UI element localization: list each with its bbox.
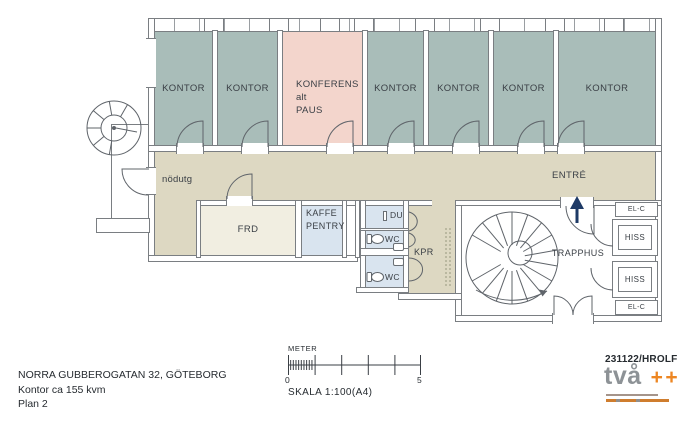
elc-top-label: EL-C <box>628 206 645 213</box>
label-kontor-2: KONTOR <box>218 83 277 94</box>
konferens-line2: alt <box>296 91 359 104</box>
wall-du-wc <box>360 228 409 231</box>
label-wc-upper: WC <box>385 234 400 244</box>
hiss-car: HISS <box>618 225 652 250</box>
logo-fineprint-line-2 <box>606 399 669 402</box>
entrance-door-opening <box>552 313 594 324</box>
pentry-line1: KAFFE <box>306 207 345 220</box>
door-arc <box>591 268 613 290</box>
company-logo: två ++ <box>604 362 680 391</box>
door-arc <box>591 224 613 246</box>
label-wc-lower: WC <box>385 272 400 282</box>
wall-trapphus-left <box>455 200 462 322</box>
hiss-upper-label: HISS <box>625 233 645 242</box>
scale-text: SKALA 1:100(A4) <box>288 387 372 398</box>
door-opening <box>326 143 354 154</box>
hiss-lower-label: HISS <box>625 275 645 284</box>
sink <box>393 243 404 251</box>
label-kontor-4: KONTOR <box>429 83 488 94</box>
scale-end-value: 5 <box>417 375 422 385</box>
scale-start-value: 0 <box>285 375 290 385</box>
door-opening <box>557 143 585 154</box>
escape-landing-step <box>96 218 150 233</box>
logo-fineprint-line-1 <box>606 394 658 396</box>
shower-icon <box>383 211 387 221</box>
door-opening <box>241 143 269 154</box>
trapphus-door-opening <box>560 197 594 208</box>
wall-kpr-bottom <box>398 293 462 300</box>
wall-frd-right <box>295 200 302 258</box>
elc-bottom-label: EL-C <box>628 304 645 311</box>
label-du: DU <box>390 210 403 220</box>
sink <box>393 258 404 266</box>
left-wall-window <box>146 38 156 88</box>
label-kaffe-pentry: KAFFE PENTRY <box>306 207 345 232</box>
pentry-line2: PENTRY <box>306 220 345 233</box>
konferens-line1: KONFERENS <box>296 78 359 91</box>
stair-direction-arrowhead <box>539 290 547 297</box>
logo-text: två <box>604 362 642 391</box>
emergency-exit-opening <box>146 167 156 195</box>
label-nodutg: nödutg <box>162 174 192 185</box>
corridor-left-strip <box>155 200 196 255</box>
logo-plus-icon: ++ <box>651 366 681 390</box>
door-opening <box>517 143 545 154</box>
window-pier <box>604 19 624 31</box>
elc-bottom-box: EL-C <box>615 300 658 315</box>
floor-plan-sheet: EL-C HISS HISS EL-C <box>0 0 700 440</box>
label-kpr: KPR <box>414 247 434 258</box>
door-opening <box>452 143 480 154</box>
title-block: NORRA GUBBEROGATAN 32, GÖTEBORG Kontor c… <box>18 368 226 412</box>
frd-door-opening <box>226 196 253 206</box>
exterior-window-wall <box>148 18 662 32</box>
area-line: Kontor ca 155 kvm <box>18 383 226 398</box>
floor-line: Plan 2 <box>18 397 226 412</box>
hiss-lower-box: HISS <box>612 261 658 298</box>
escape-landing <box>111 124 149 220</box>
hiss-car: HISS <box>618 267 652 292</box>
hiss-upper-box: HISS <box>612 219 658 256</box>
wall-office-divider <box>277 30 283 147</box>
door-arc <box>566 206 594 234</box>
address-line: NORRA GUBBEROGATAN 32, GÖTEBORG <box>18 368 226 383</box>
label-kontor-6: KONTOR <box>559 83 655 94</box>
door-opening <box>387 143 415 154</box>
door-opening <box>176 143 204 154</box>
scale-bar <box>288 352 428 380</box>
elc-top-box: EL-C <box>615 202 658 217</box>
label-trapphus: TRAPPHUS <box>540 248 616 259</box>
wall-wet-left <box>360 200 366 293</box>
window-pier <box>320 19 340 31</box>
label-entre: ENTRÉ <box>552 170 586 181</box>
wall-bottom-left-exterior <box>148 255 358 262</box>
label-kontor-1: KONTOR <box>155 83 212 94</box>
kpr-corridor-opening <box>432 198 455 208</box>
label-frd: FRD <box>201 224 295 235</box>
label-kontor-5: KONTOR <box>494 83 553 94</box>
label-kontor-3: KONTOR <box>368 83 423 94</box>
konferens-line3: PAUS <box>296 104 359 117</box>
scale-unit-label: METER <box>288 344 317 353</box>
label-konferens: KONFERENS alt PAUS <box>296 78 359 117</box>
